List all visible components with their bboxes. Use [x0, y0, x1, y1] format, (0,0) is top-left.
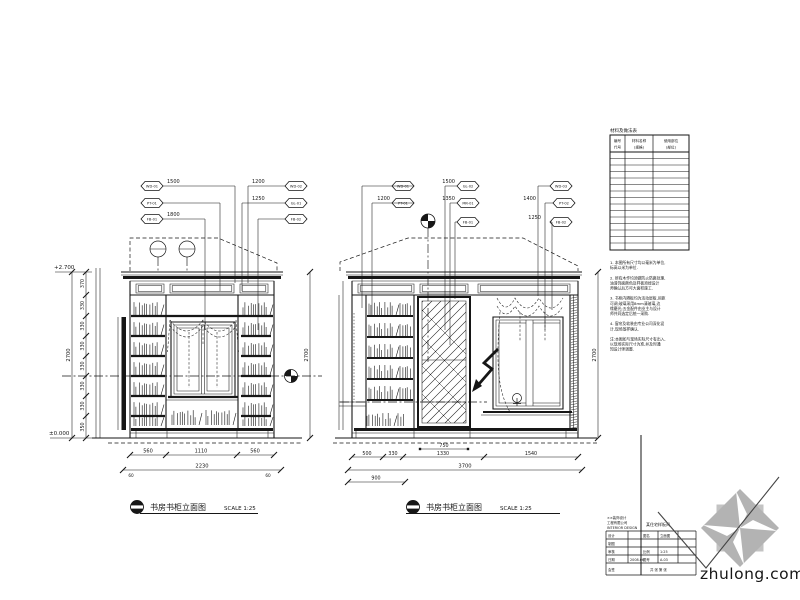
drawing-canvas: zhulong.com 5601110560370330330330330330…: [0, 0, 800, 600]
level-label-top: +2.700: [54, 265, 75, 271]
right-curtain-dashed: [497, 298, 563, 412]
bookshelf-books: [367, 302, 411, 426]
dim-text: 330: [388, 451, 397, 457]
note-line: 标高以米为单位.: [610, 265, 638, 270]
schedule-border: [610, 135, 689, 250]
titleblock-value: 1:25: [660, 550, 668, 554]
dim-text: 330: [80, 361, 86, 370]
titleblock-label: 设计: [608, 533, 615, 538]
tag-dim-text: 1200: [377, 196, 390, 202]
schedule-subheader: (规格): [634, 145, 645, 150]
drawing-title-right: 书房书柜立面图 SCALE 1:25: [405, 501, 560, 514]
dim-text: 560: [250, 449, 260, 455]
drawing-title-text: 书房书柜立面图: [150, 502, 206, 512]
titleblock-label: 审核: [608, 549, 615, 554]
dim-text: 1540: [525, 451, 537, 457]
dim-total-side: 2700: [66, 348, 72, 361]
dimension-texts: 50033013301540: [362, 451, 537, 457]
schedule-subheader: 代号: [614, 145, 622, 150]
tag-dim-text: 1200: [252, 179, 265, 185]
tag-dim-text: 1400: [523, 196, 536, 202]
dim-text: 330: [80, 381, 86, 390]
tag-dim-text: 1500: [442, 179, 455, 185]
titleblock-footer: 会签: [608, 567, 615, 572]
finish-tag-code: FB-01: [463, 221, 473, 225]
dim-edge: 60: [265, 473, 271, 478]
dim-text: 370: [80, 279, 86, 288]
drawing-title-text: 书房书柜立面图: [426, 502, 482, 512]
dim-extra: 900: [371, 476, 380, 482]
company-line: 工程有限公司: [607, 520, 627, 525]
schedule-caption: 材料及做法表: [610, 127, 637, 134]
finish-tag-code: WD-03: [555, 185, 567, 189]
left-side-panel-section: [122, 317, 127, 430]
drawing-scale-text: SCALE 1:25: [224, 506, 256, 512]
tag-dim-text: 1350: [442, 196, 455, 202]
section-marker: [421, 214, 435, 228]
elevation-right: 50033013301540 3700 750 900 2700: [292, 186, 601, 485]
tag-dim-text: 1250: [252, 196, 265, 202]
note-line: 计,现场放样确认.: [610, 326, 639, 331]
dim-text: 350: [80, 422, 86, 431]
title-block: ××装饰设计 工程有限公司 INTERIOR DESIGN 某住宅样板间 设计图…: [606, 435, 696, 575]
tag-dim-text: 1800: [167, 212, 180, 218]
finish-tag-code: PT-02: [559, 202, 569, 206]
titleblock-value: 2008.06: [630, 558, 644, 562]
watermark-text: zhulong.com: [700, 565, 800, 583]
note-line: 师共同选定后统一采购.: [610, 311, 649, 316]
drawing-title-bubble: [405, 501, 421, 514]
dim-total: 3700: [458, 464, 471, 470]
dimension-ticks: [69, 269, 313, 473]
finish-tag-code: WD-02: [290, 185, 302, 189]
dim-text: 330: [80, 401, 86, 410]
dim-total: 2230: [195, 464, 208, 470]
finish-tag-code: WD-01: [146, 185, 158, 189]
titleblock-label: 图名: [643, 533, 650, 538]
schedule-rows: [610, 159, 689, 244]
glass-panel-hatch: [292, 301, 585, 438]
dim-text: 1330: [437, 451, 449, 457]
dim-text: 330: [80, 301, 86, 310]
titleblock-label: 日期: [608, 557, 615, 562]
schedule-header: 使用部位: [664, 138, 679, 143]
dim-total-side: 2700: [592, 348, 598, 361]
cad-sheet: zhulong.com 5601110560370330330330330330…: [0, 0, 800, 600]
schedule-table: 材料及做法表 编号 代号 材料名称 (规格) 使用部位 (部位): [610, 127, 689, 250]
dim-text: 330: [80, 341, 86, 350]
company-line: INTERIOR DESIGN: [607, 526, 638, 530]
dim-text: 330: [80, 321, 86, 330]
schedule-header: 材料名称: [632, 138, 647, 143]
note-line: 知设计师调整.: [610, 347, 634, 352]
finish-tag-code: PT-01: [398, 202, 408, 206]
titleblock-footer: 共 张 第 张: [650, 567, 667, 572]
watermark: zhulong.com: [700, 489, 800, 583]
finish-tag-code: GL-02: [463, 185, 474, 189]
schedule-subheader: (部位): [666, 145, 677, 150]
finish-tag-code: MR-01: [462, 202, 473, 206]
dim-inner: 750: [439, 443, 448, 449]
finish-tag-code: PT-01: [147, 202, 157, 206]
elevation-left: 5601110560370330330330330330330350 +2.70…: [49, 186, 322, 478]
curtain-section-hatch: [571, 297, 577, 428]
left-curtain-dashed: [168, 320, 239, 388]
titleblock-value: A-03: [660, 558, 668, 562]
drawing-title-bubble: [129, 501, 145, 514]
left-thin-lines: [50, 186, 310, 470]
finish-tag-code: GL-01: [291, 202, 302, 206]
dim-text: 500: [362, 451, 371, 457]
window-handle: [513, 394, 522, 407]
finish-tag-code: WD-01: [397, 185, 409, 189]
dim-total-side: 2700: [304, 348, 310, 361]
note-line: 师确认后方可大面积施工.: [610, 286, 653, 291]
general-notes: 1. 本图所有尺寸均以毫米为单位, 标高以米为单位.2. 所有木作均须做防火防腐…: [610, 260, 666, 352]
titleblock-label: 图号: [643, 557, 650, 562]
titleblock-value: 立面图: [660, 533, 671, 538]
left-shelf-bands: [131, 316, 273, 416]
level-label-bottom: ±0.000: [49, 431, 70, 437]
tag-dim-text: 1500: [167, 179, 180, 185]
finish-tag-code: FB-02: [556, 221, 566, 225]
drawing-scale-text: SCALE 1:25: [500, 506, 532, 512]
titleblock-label: 制图: [608, 541, 615, 546]
tag-dim-text: 1250: [528, 215, 541, 221]
titleblock-label: 比例: [643, 549, 650, 554]
datum-marker: [285, 370, 298, 383]
bookshelf-books: [134, 302, 273, 426]
finish-tag-code: FB-01: [147, 218, 157, 222]
dim-text: 1110: [195, 449, 208, 455]
company-line: ××装饰设计: [607, 515, 627, 520]
finish-tag-code: FB-02: [291, 218, 301, 222]
dim-edge: 60: [128, 473, 134, 478]
schedule-header: 编号: [614, 138, 622, 143]
drawing-title-left: 书房书柜立面图 SCALE 1:25: [129, 501, 258, 514]
swing-direction-arrow: [472, 349, 498, 392]
dim-text: 560: [143, 449, 153, 455]
